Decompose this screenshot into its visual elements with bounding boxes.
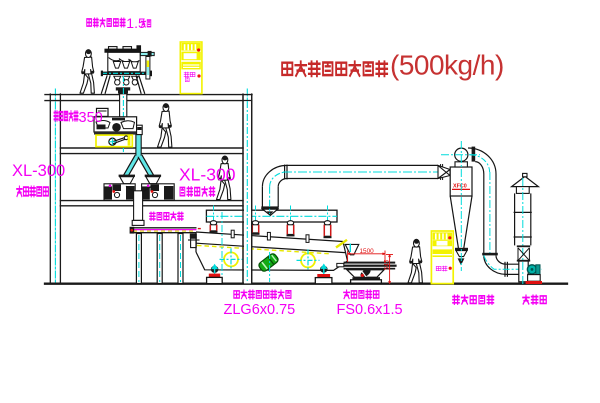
svg-text:ZLG6x0.75: ZLG6x0.75 (224, 302, 296, 318)
svg-text:(500kg/h): (500kg/h) (390, 50, 504, 81)
svg-text:350: 350 (79, 110, 103, 126)
svg-text:FS0.6x1.5: FS0.6x1.5 (337, 302, 403, 318)
svg-text:XL-300: XL-300 (179, 165, 236, 185)
svg-text:545: 545 (383, 259, 390, 270)
svg-text:1.5: 1.5 (126, 15, 146, 31)
svg-text:XFC0: XFC0 (453, 184, 467, 190)
svg-text:XL-300: XL-300 (12, 162, 65, 180)
svg-text:1500: 1500 (360, 248, 375, 255)
